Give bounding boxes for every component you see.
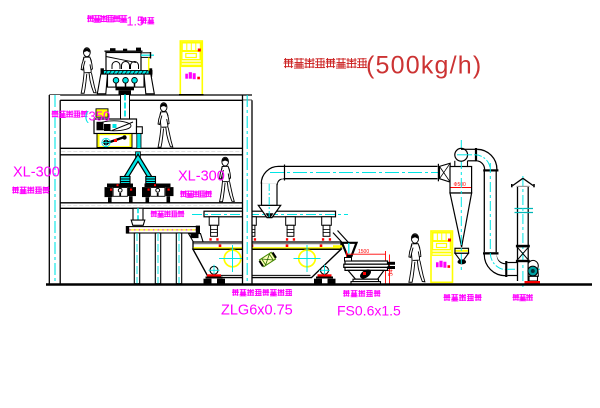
svg-text:XL-300: XL-300: [13, 165, 60, 181]
svg-text:350: 350: [89, 109, 111, 124]
svg-text:FS0.6x1.5: FS0.6x1.5: [337, 303, 401, 319]
svg-text:Φ500: Φ500: [454, 182, 467, 188]
svg-text:1500: 1500: [358, 249, 369, 255]
svg-text:(500kg/h): (500kg/h): [366, 52, 482, 80]
svg-text:XL-300: XL-300: [178, 169, 225, 185]
svg-text:ZLG6x0.75: ZLG6x0.75: [221, 303, 293, 319]
